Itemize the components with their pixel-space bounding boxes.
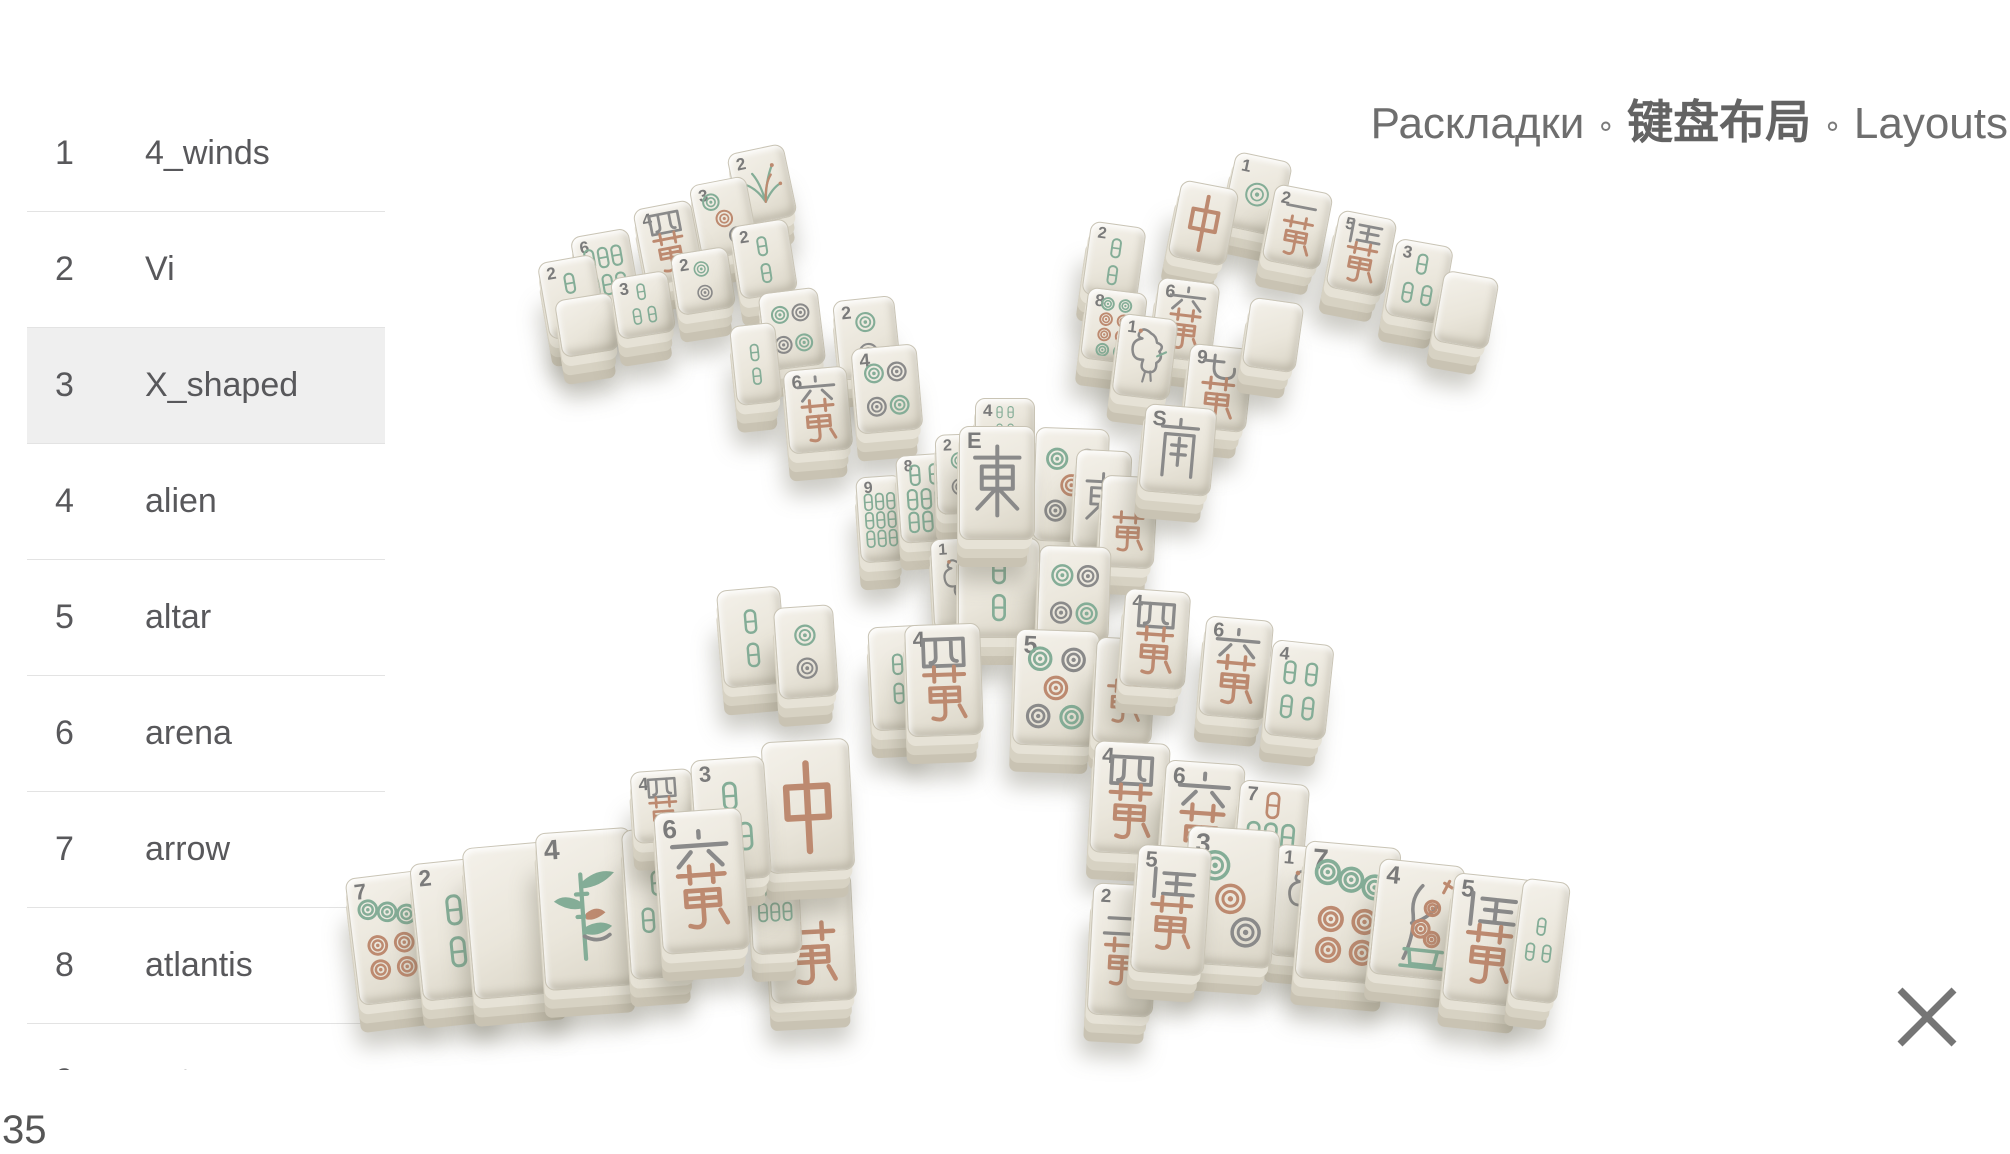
tile-face-circle2-icon [674, 252, 732, 312]
mahjong-tile-circle2 [773, 604, 839, 700]
title-english: Layouts [1854, 99, 2008, 148]
layouts-screen: 234623222649812532861942S1E4546472443646… [0, 0, 2010, 1154]
layout-item-number: 3 [27, 366, 145, 405]
tile-face-east-icon [964, 435, 1031, 534]
layout-item-number: 7 [27, 830, 145, 869]
mahjong-tile-bird: 1 [1111, 313, 1179, 401]
tile-face-blank-icon [1437, 276, 1496, 345]
mahjong-tile-wan4: 4 [1119, 588, 1192, 690]
tile-face-bamboo3-icon [1513, 887, 1567, 997]
title-russian: Раскладки [1371, 99, 1585, 148]
mahjong-tile-blank [1432, 270, 1500, 351]
mahjong-tile-wan4: 4 [1089, 740, 1171, 856]
title-separator: ∘ [1823, 110, 1842, 143]
tile-face-wan6-icon [659, 818, 745, 946]
layout-item-number: 1 [27, 134, 145, 173]
title-chinese: 键盘布局 [1627, 96, 1811, 148]
layout-list-item-aztec[interactable]: 9aztec [27, 1024, 385, 1070]
tile-face-zhong-icon [766, 748, 849, 866]
layout-item-number: 4 [27, 482, 145, 521]
tile-face-circle2-icon [777, 612, 835, 695]
layout-list-item-X_shaped[interactable]: 3X_shaped [27, 328, 385, 444]
layout-item-label: altar [145, 598, 385, 637]
tile-face-wan5-icon [1135, 854, 1207, 969]
layout-list-item-arena[interactable]: 6arena [27, 676, 385, 792]
tile-face-blank-icon [1246, 303, 1301, 369]
tile-face-blank-icon [558, 297, 615, 354]
mahjong-tile-wan5: 5 [1325, 209, 1398, 298]
tile-face-wan6-icon [787, 372, 849, 449]
tile-face-wan5-icon [1330, 216, 1393, 292]
tile-face-zhong-icon [1172, 186, 1235, 261]
mahjong-tile-circle4: 4 [850, 343, 923, 434]
tile-face-bamboo2-icon [734, 224, 794, 294]
layout-list-item-atlantis[interactable]: 8atlantis [27, 908, 385, 1024]
tile-face-bamboo2-icon [733, 329, 780, 401]
close-button[interactable] [1890, 980, 1966, 1056]
mahjong-tile-wan6: 6 [1198, 615, 1274, 721]
layout-item-number: 5 [27, 598, 145, 637]
tile-face-circle4-icon [855, 351, 919, 430]
layout-item-label: aztec [145, 1062, 385, 1070]
tile-face-plant-icon [541, 839, 635, 982]
layout-item-label: Vi [145, 250, 385, 289]
layout-list-item-Vi[interactable]: 2Vi [27, 212, 385, 328]
layout-item-label: atlantis [145, 946, 385, 985]
layout-list-item-altar[interactable]: 5altar [27, 560, 385, 676]
mahjong-tile-zhong [761, 738, 856, 874]
layout-list-item-4_winds[interactable]: 14_winds [27, 96, 385, 212]
layout-item-label: X_shaped [145, 366, 385, 405]
tile-face-wan4-icon [1123, 596, 1186, 684]
tile-face-wan4-icon [1094, 749, 1166, 849]
mahjong-tile-south: S [1138, 403, 1217, 497]
tile-face-wan4-icon [909, 632, 979, 731]
tile-face-bamboo2-icon [963, 546, 1035, 632]
layout-list-item-alien[interactable]: 4alien [27, 444, 385, 560]
mahjong-tile-bamboo2: 2 [730, 218, 799, 300]
layout-item-label: arena [145, 714, 385, 753]
mahjong-tile-zhong [1167, 179, 1240, 267]
mahjong-tile-wan4: 4 [904, 623, 984, 738]
layout-list-item-arrow[interactable]: 7arrow [27, 792, 385, 908]
mahjong-tile-east: E [959, 426, 1035, 540]
tile-face-bamboo4-icon [1268, 647, 1330, 735]
layout-item-label: arrow [145, 830, 385, 869]
mahjong-tile-blank [554, 292, 620, 358]
mahjong-tile-circle5: 5 [1012, 629, 1100, 748]
mahjong-tile-circle2: 2 [670, 246, 737, 316]
tile-face-wan6-icon [1203, 623, 1270, 714]
mahjong-tile-circle4 [1036, 545, 1111, 643]
mahjong-tile-bamboo4: 4 [1263, 639, 1335, 741]
tile-face-bamboo2-icon [1085, 227, 1142, 297]
mahjong-tile-wan6: 6 [782, 365, 853, 454]
tile-face-south-icon [1143, 410, 1212, 491]
page-title: Раскладки∘键盘布局∘Layouts [1371, 94, 2008, 155]
layout-item-label: alien [145, 482, 385, 521]
tile-face-circle5-icon [1017, 638, 1094, 741]
layout-item-number: 6 [27, 714, 145, 753]
tile-face-bird-icon [1116, 320, 1175, 396]
tile-face-bamboo3-icon [614, 276, 672, 336]
layout-item-number: 9 [27, 1062, 145, 1070]
tile-face-circle4-icon [1041, 553, 1107, 638]
mahjong-tile-wan6: 6 [653, 807, 751, 955]
layout-item-number: 2 [27, 250, 145, 289]
title-separator: ∘ [1596, 110, 1615, 143]
mahjong-tile-blank [1241, 297, 1304, 374]
mahjong-tile-bamboo3: 3 [610, 270, 677, 340]
layouts-count: 35 [2, 1108, 47, 1153]
mahjong-tile-wan5: 5 [1130, 844, 1213, 977]
close-icon [1890, 980, 1966, 1056]
mahjong-tile-bamboo2 [729, 322, 783, 406]
layout-item-number: 8 [27, 946, 145, 985]
layout-list: 14_winds2Vi3X_shaped4alien5altar6arena7a… [27, 96, 385, 1070]
tile-face-wan1-icon [1266, 190, 1329, 265]
layout-item-label: 4_winds [145, 134, 385, 173]
